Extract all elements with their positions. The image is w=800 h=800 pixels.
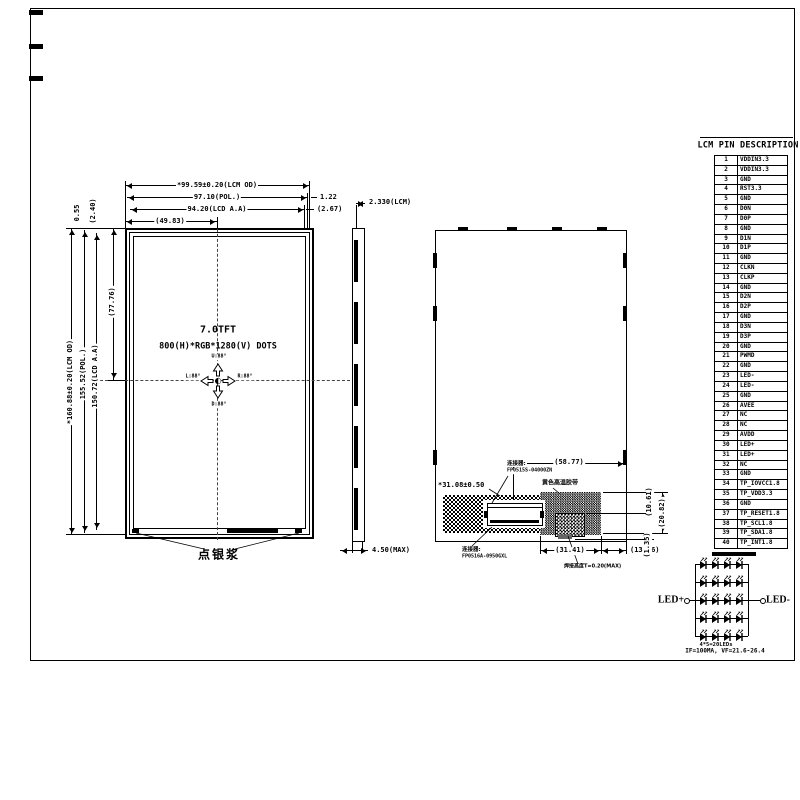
pin-number: 5 bbox=[715, 194, 738, 204]
dim-top-offset2: (2.40) bbox=[90, 197, 98, 224]
connector-top-part: FP0515S-04000ZN bbox=[506, 468, 553, 474]
led-icon bbox=[710, 557, 722, 571]
pin-number: 14 bbox=[715, 283, 738, 293]
pin-name: LED+ bbox=[738, 440, 787, 450]
connector-clip-right bbox=[540, 511, 544, 518]
led-icon bbox=[734, 611, 746, 625]
pin-number: 30 bbox=[715, 440, 738, 450]
pin-number: 8 bbox=[715, 224, 738, 234]
dim-line-aa-gap bbox=[306, 209, 314, 210]
pin-name: CLKP bbox=[738, 273, 787, 283]
frame-tick-3 bbox=[29, 76, 43, 81]
pin-number: 17 bbox=[715, 312, 738, 322]
led-icon bbox=[734, 593, 746, 607]
pin-number: 20 bbox=[715, 342, 738, 352]
panel-size-text: 7.0TFT bbox=[199, 325, 237, 336]
side-tape-segment bbox=[354, 426, 358, 468]
pin-name: PWMD bbox=[738, 351, 787, 361]
pin-number: 22 bbox=[715, 361, 738, 371]
led-icon bbox=[710, 629, 722, 643]
engineering-drawing-sheet: 7.0TFT 800(H)*RGB*1280(V) DOTS U:88° D:8… bbox=[0, 0, 800, 800]
dim-line-lcm-thickness bbox=[356, 203, 365, 204]
pin-number: 39 bbox=[715, 528, 738, 538]
front-fpc-stub bbox=[227, 528, 278, 533]
led-icon bbox=[722, 557, 734, 571]
fpc-tail-tab bbox=[558, 535, 572, 539]
dim-connector-span: (58.77) bbox=[553, 459, 585, 467]
led-icon bbox=[722, 611, 734, 625]
dim-tab-h: (1.35) bbox=[644, 531, 652, 558]
led-icon bbox=[710, 611, 722, 625]
panel-resolution-text: 800(H)*RGB*1280(V) DOTS bbox=[158, 342, 278, 351]
pin-name: AVDD bbox=[738, 430, 787, 440]
pin-number: 38 bbox=[715, 519, 738, 529]
connector-bottom-part: FP0516A-0950GXL bbox=[461, 554, 508, 560]
side-tape-segment bbox=[354, 240, 358, 282]
ext-line bbox=[586, 513, 654, 514]
mount-tab bbox=[433, 450, 437, 465]
pin-name: NC bbox=[738, 420, 787, 430]
connector-body bbox=[487, 503, 543, 526]
pin-number: 6 bbox=[715, 204, 738, 214]
pin-name: AVEE bbox=[738, 401, 787, 411]
dim-fpc-width: *31.08±0.50 bbox=[437, 482, 485, 490]
pin-number: 25 bbox=[715, 391, 738, 401]
dim-aa-gap: (2.67) bbox=[316, 206, 343, 214]
pin-name: D0P bbox=[738, 214, 787, 224]
pin-name: GND bbox=[738, 361, 787, 371]
dim-lcm-thickness: 2.330(LCM) bbox=[368, 199, 412, 207]
pin-name: GND bbox=[738, 312, 787, 322]
pin-name: GND bbox=[738, 253, 787, 263]
pin-number: 18 bbox=[715, 322, 738, 332]
led-icon bbox=[722, 629, 734, 643]
tape-label: 黄色高温胶带 bbox=[541, 481, 579, 488]
pin-number: 1 bbox=[715, 156, 738, 165]
pin-name: RST3.3 bbox=[738, 184, 787, 194]
pin-number: 37 bbox=[715, 509, 738, 519]
dim-pol-width: 97.10(POL.) bbox=[193, 194, 241, 202]
pin-number: 27 bbox=[715, 410, 738, 420]
led-icon bbox=[734, 557, 746, 571]
dim-pol-height: 155.52(POL.) bbox=[80, 348, 88, 401]
pin-name: GND bbox=[738, 391, 787, 401]
pin-number: 4 bbox=[715, 184, 738, 194]
led-anode-label: LED+ bbox=[657, 595, 685, 606]
pin-name: NC bbox=[738, 460, 787, 470]
pin-name: VDDIN3.3 bbox=[738, 165, 787, 175]
pin-name: D0N bbox=[738, 204, 787, 214]
silver-paste-label: 点银浆 bbox=[197, 548, 241, 561]
pin-number: 31 bbox=[715, 450, 738, 460]
pin-name: GND bbox=[738, 175, 787, 185]
connector-top-label: 连接器: bbox=[506, 461, 527, 467]
pin-name: LED- bbox=[738, 371, 787, 381]
led-icon bbox=[722, 593, 734, 607]
table-footer-bar bbox=[712, 552, 756, 556]
solder-pad-area bbox=[555, 513, 585, 537]
mount-tab bbox=[433, 253, 437, 268]
pin-number: 33 bbox=[715, 469, 738, 479]
pin-number: 40 bbox=[715, 538, 738, 548]
frame-tick-2 bbox=[29, 44, 43, 49]
pin-number: 23 bbox=[715, 371, 738, 381]
pin-name: GND bbox=[738, 224, 787, 234]
led-icon bbox=[722, 575, 734, 589]
pin-name: D3P bbox=[738, 332, 787, 342]
pin-name: TP_SDA1.8 bbox=[738, 528, 787, 538]
led-icon bbox=[710, 593, 722, 607]
dim-tape-h1: (10.61) bbox=[646, 486, 654, 518]
dim-line-edge-offset bbox=[601, 550, 626, 551]
pin-name: GND bbox=[738, 342, 787, 352]
dim-tape-width: (31.41) bbox=[554, 547, 586, 555]
side-tape-segment bbox=[354, 302, 358, 344]
pin-number: 12 bbox=[715, 263, 738, 273]
mount-tab bbox=[433, 306, 437, 321]
led-icon bbox=[698, 611, 710, 625]
pin-number: 15 bbox=[715, 292, 738, 302]
pin-name: GND bbox=[738, 283, 787, 293]
viewing-angle-right: R:88° bbox=[236, 374, 253, 380]
pin-name: NC bbox=[738, 410, 787, 420]
pin-number: 36 bbox=[715, 499, 738, 509]
pin-name: TP_VDD3.3 bbox=[738, 489, 787, 499]
pin-number: 3 bbox=[715, 175, 738, 185]
dim-half-height: (77.76) bbox=[109, 286, 117, 318]
dim-pol-gap: 1.22 bbox=[319, 194, 338, 202]
pin-number: 13 bbox=[715, 273, 738, 283]
pin-number: 34 bbox=[715, 479, 738, 489]
pin-number: 16 bbox=[715, 302, 738, 312]
pin-name: GND bbox=[738, 499, 787, 509]
pin-number: 2 bbox=[715, 165, 738, 175]
ext-line bbox=[66, 534, 125, 535]
pin-name: TP_SCL1.8 bbox=[738, 519, 787, 529]
pin-number: 11 bbox=[715, 253, 738, 263]
led-icon bbox=[698, 575, 710, 589]
silver-dot-right bbox=[295, 529, 302, 533]
pin-name: GND bbox=[738, 469, 787, 479]
dim-aa-width: 94.20(LCD A.A) bbox=[186, 206, 247, 214]
pin-table-title: LCM PIN DESCRIPTION bbox=[696, 141, 799, 150]
dim-half-width: (49.83) bbox=[154, 218, 186, 226]
pin-number: 9 bbox=[715, 234, 738, 244]
mount-tab bbox=[597, 227, 607, 231]
pin-table: 1VDDIN3.32VDDIN3.33GND4RST3.35GND6D0N7D0… bbox=[714, 155, 788, 549]
pin-name: D2N bbox=[738, 292, 787, 302]
pin-name: CLKN bbox=[738, 263, 787, 273]
pin-number: 19 bbox=[715, 332, 738, 342]
pin-name: D1P bbox=[738, 243, 787, 253]
led-icon bbox=[698, 593, 710, 607]
pin-name: TP_RESET1.8 bbox=[738, 509, 787, 519]
title-separator-line bbox=[700, 137, 793, 138]
mount-tab bbox=[552, 227, 562, 231]
pin-number: 21 bbox=[715, 351, 738, 361]
led-spec-label: IF=100MA, VF=21.6-26.4 bbox=[684, 649, 765, 656]
ext-line bbox=[356, 205, 357, 228]
led-cathode-wire bbox=[748, 600, 760, 601]
pin-number: 26 bbox=[715, 401, 738, 411]
pin-name: LED+ bbox=[738, 450, 787, 460]
pin-number: 24 bbox=[715, 381, 738, 391]
dim-tape-h2: (20.82) bbox=[659, 497, 667, 529]
led-icon bbox=[734, 575, 746, 589]
pin-name: D3N bbox=[738, 322, 787, 332]
ext-line bbox=[603, 533, 668, 534]
dim-line-pol-gap bbox=[311, 197, 317, 198]
led-icon bbox=[698, 557, 710, 571]
pin-name: D2P bbox=[738, 302, 787, 312]
led-icon bbox=[698, 629, 710, 643]
led-cathode-label: LED- bbox=[765, 595, 791, 606]
dim-lcm-width: *99.59±0.20(LCM OD) bbox=[176, 182, 258, 190]
pin-number: 35 bbox=[715, 489, 738, 499]
mount-tab bbox=[507, 227, 517, 231]
led-icon bbox=[710, 575, 722, 589]
pin-name: TP_INT1.8 bbox=[738, 538, 787, 548]
silver-dot-left bbox=[132, 529, 139, 533]
mount-tab bbox=[458, 227, 468, 231]
dim-aa-height: 150.72(LCD A.A) bbox=[92, 343, 100, 408]
led-icon bbox=[734, 629, 746, 643]
dim-max-thickness: 4.50(MAX) bbox=[371, 547, 411, 555]
pin-number: 29 bbox=[715, 430, 738, 440]
dim-top-offset1: 0.55 bbox=[74, 204, 82, 223]
pin-number: 28 bbox=[715, 420, 738, 430]
pin-number: 10 bbox=[715, 243, 738, 253]
ext-line bbox=[352, 542, 353, 553]
connector-bottom-label: 连接器: bbox=[461, 547, 482, 553]
viewing-angle-up: U:88° bbox=[210, 354, 227, 360]
side-tape-segment bbox=[354, 488, 358, 530]
side-tape-segment bbox=[354, 364, 358, 406]
mount-tab bbox=[623, 253, 627, 268]
ext-line bbox=[603, 492, 668, 493]
pin-number: 7 bbox=[715, 214, 738, 224]
pin-name: GND bbox=[738, 194, 787, 204]
viewing-angle-down: D:88° bbox=[210, 402, 227, 408]
dim-lcm-height: *160.88±0.20(LCM OD) bbox=[67, 339, 75, 425]
pin-name: D1N bbox=[738, 234, 787, 244]
pin-name: TP_IOVCC1.8 bbox=[738, 479, 787, 489]
viewing-angle-left: L:88° bbox=[184, 374, 201, 380]
dim-line-max-thickness bbox=[340, 550, 368, 551]
ext-line bbox=[575, 539, 654, 540]
pin-name: VDDIN3.3 bbox=[738, 156, 787, 165]
solder-height-label: 焊接高度T=0.20(MAX) bbox=[563, 564, 622, 570]
pin-number: 32 bbox=[715, 460, 738, 470]
connector-clip-left bbox=[484, 511, 488, 518]
mount-tab bbox=[623, 306, 627, 321]
frame-tick-1 bbox=[29, 10, 43, 15]
viewing-angle-arrows-icon bbox=[198, 361, 238, 401]
pin-name: LED- bbox=[738, 381, 787, 391]
